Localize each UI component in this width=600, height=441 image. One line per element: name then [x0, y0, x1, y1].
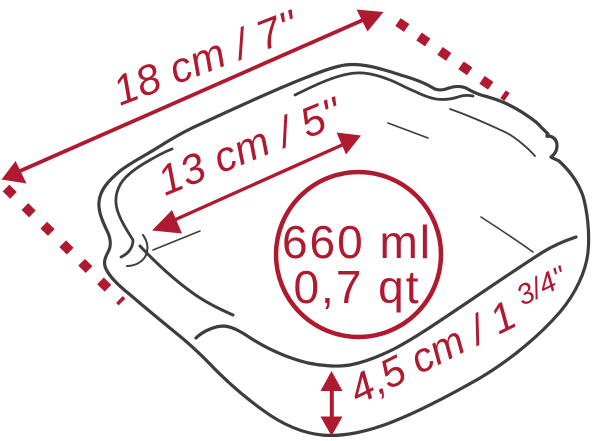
svg-text:0,7 qt: 0,7 qt	[293, 261, 420, 313]
